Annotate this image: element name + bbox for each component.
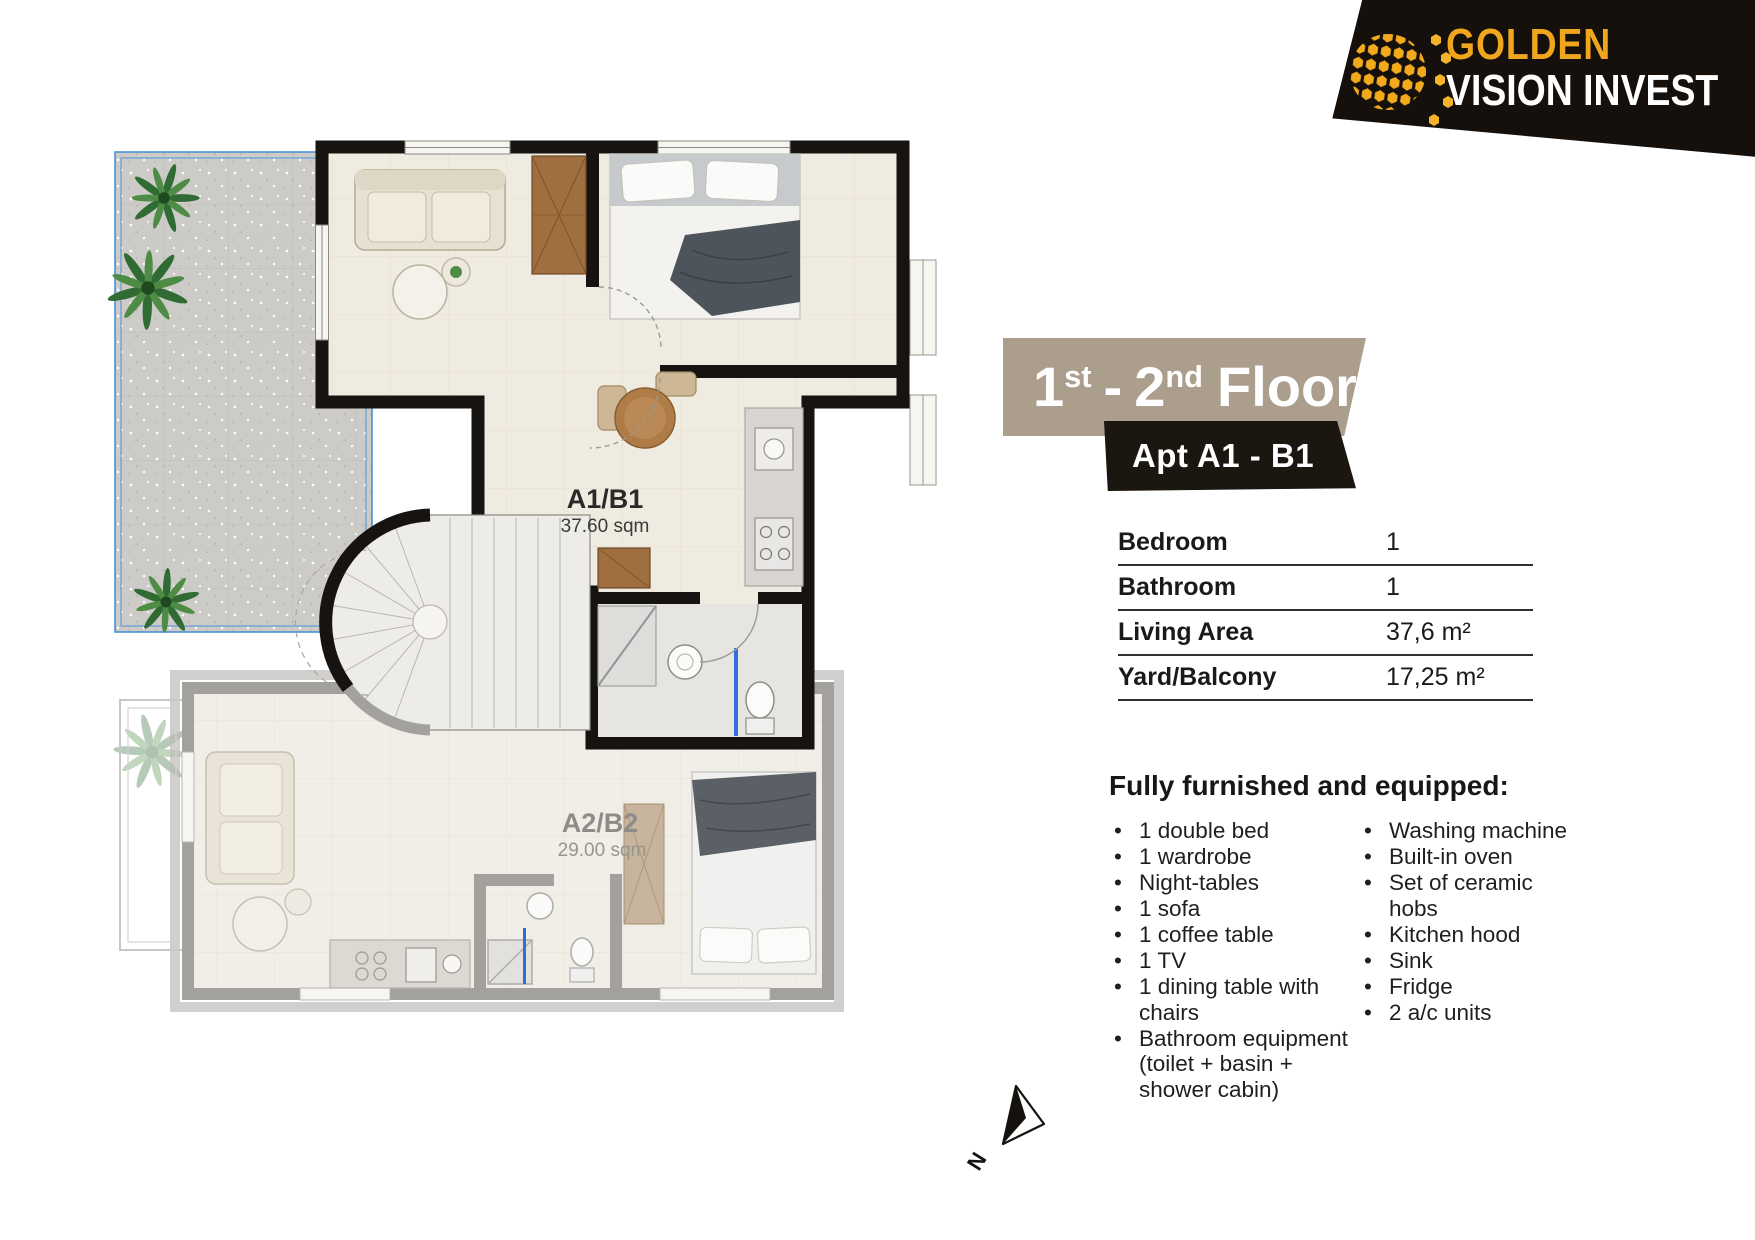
list-item: Set of ceramic hobs (1359, 870, 1579, 921)
list-item: Fridge (1359, 974, 1579, 1000)
spec-value: 37,6 m² (1386, 618, 1471, 647)
banner-word: Floor (1217, 355, 1357, 418)
bathroom (598, 604, 802, 737)
spec-value: 1 (1386, 528, 1400, 557)
furnished-heading: Fully furnished and equipped: (1109, 770, 1509, 802)
flyer-page: A1/B1 37.60 sqm A2/B2 29.00 sqm N (0, 0, 1755, 1240)
banner-num2: 2 (1134, 355, 1165, 418)
apt-badge: Apt A1 - B1 (1104, 421, 1356, 491)
logo-word-golden: GOLDEN (1446, 20, 1611, 70)
table-row: Yard/Balcony 17,25 m² (1118, 656, 1533, 701)
list-item: 1 wardrobe (1109, 844, 1359, 870)
spec-value: 17,25 m² (1386, 663, 1485, 692)
list-item: 1 TV (1109, 948, 1359, 974)
floor-plan: A1/B1 37.60 sqm A2/B2 29.00 sqm (100, 140, 940, 1020)
list-item: Bathroom equipment (toilet + basin + sho… (1109, 1026, 1359, 1103)
spec-label: Bedroom (1118, 528, 1386, 557)
spec-label: Bathroom (1118, 573, 1386, 602)
table-row: Bedroom 1 (1118, 521, 1533, 566)
unit1-label: A1/B1 (567, 484, 644, 514)
banner-sup2: nd (1165, 359, 1203, 394)
table-row: Living Area 37,6 m² (1118, 611, 1533, 656)
kitchen-counter (745, 408, 803, 586)
list-item: Night-tables (1109, 870, 1359, 896)
furnished-list-left: 1 double bed 1 wardrobe Night-tables 1 s… (1109, 818, 1359, 1103)
unit2-label: A2/B2 (562, 808, 639, 838)
unit1-area: 37.60 sqm (561, 516, 650, 537)
compass-label: N (962, 1148, 992, 1175)
table-row: Bathroom 1 (1118, 566, 1533, 611)
company-logo: GOLDEN VISION INVEST (1328, 0, 1755, 160)
list-item: 1 sofa (1109, 896, 1359, 922)
wardrobe (532, 156, 586, 274)
list-item: 1 coffee table (1109, 922, 1359, 948)
furnished-lists: 1 double bed 1 wardrobe Night-tables 1 s… (1109, 818, 1579, 1103)
north-compass: N (952, 1076, 1064, 1176)
spec-value: 1 (1386, 573, 1400, 602)
furnished-list-right: Washing machine Built-in oven Set of cer… (1359, 818, 1579, 1103)
banner-sep: - (1104, 355, 1123, 418)
list-item: Sink (1359, 948, 1579, 974)
unit2-area: 29.00 sqm (558, 840, 647, 861)
floor-banner-text: 1st-2ndFloor (1033, 354, 1357, 419)
list-item: 2 a/c units (1359, 1000, 1579, 1026)
list-item: 1 dining table with chairs (1109, 974, 1359, 1025)
spec-label: Yard/Balcony (1118, 663, 1386, 692)
sofa (355, 170, 505, 250)
list-item: Built-in oven (1359, 844, 1579, 870)
apt-badge-label: Apt A1 - B1 (1132, 437, 1328, 475)
double-bed (610, 154, 800, 319)
list-item: Washing machine (1359, 818, 1579, 844)
specs-table: Bedroom 1 Bathroom 1 Living Area 37,6 m²… (1118, 521, 1533, 701)
logo-word-vision-invest: VISION INVEST (1446, 66, 1718, 116)
spec-label: Living Area (1118, 618, 1386, 647)
list-item: Kitchen hood (1359, 922, 1579, 948)
banner-num1: 1 (1033, 355, 1064, 418)
banner-sup1: st (1064, 359, 1091, 394)
list-item: 1 double bed (1109, 818, 1359, 844)
